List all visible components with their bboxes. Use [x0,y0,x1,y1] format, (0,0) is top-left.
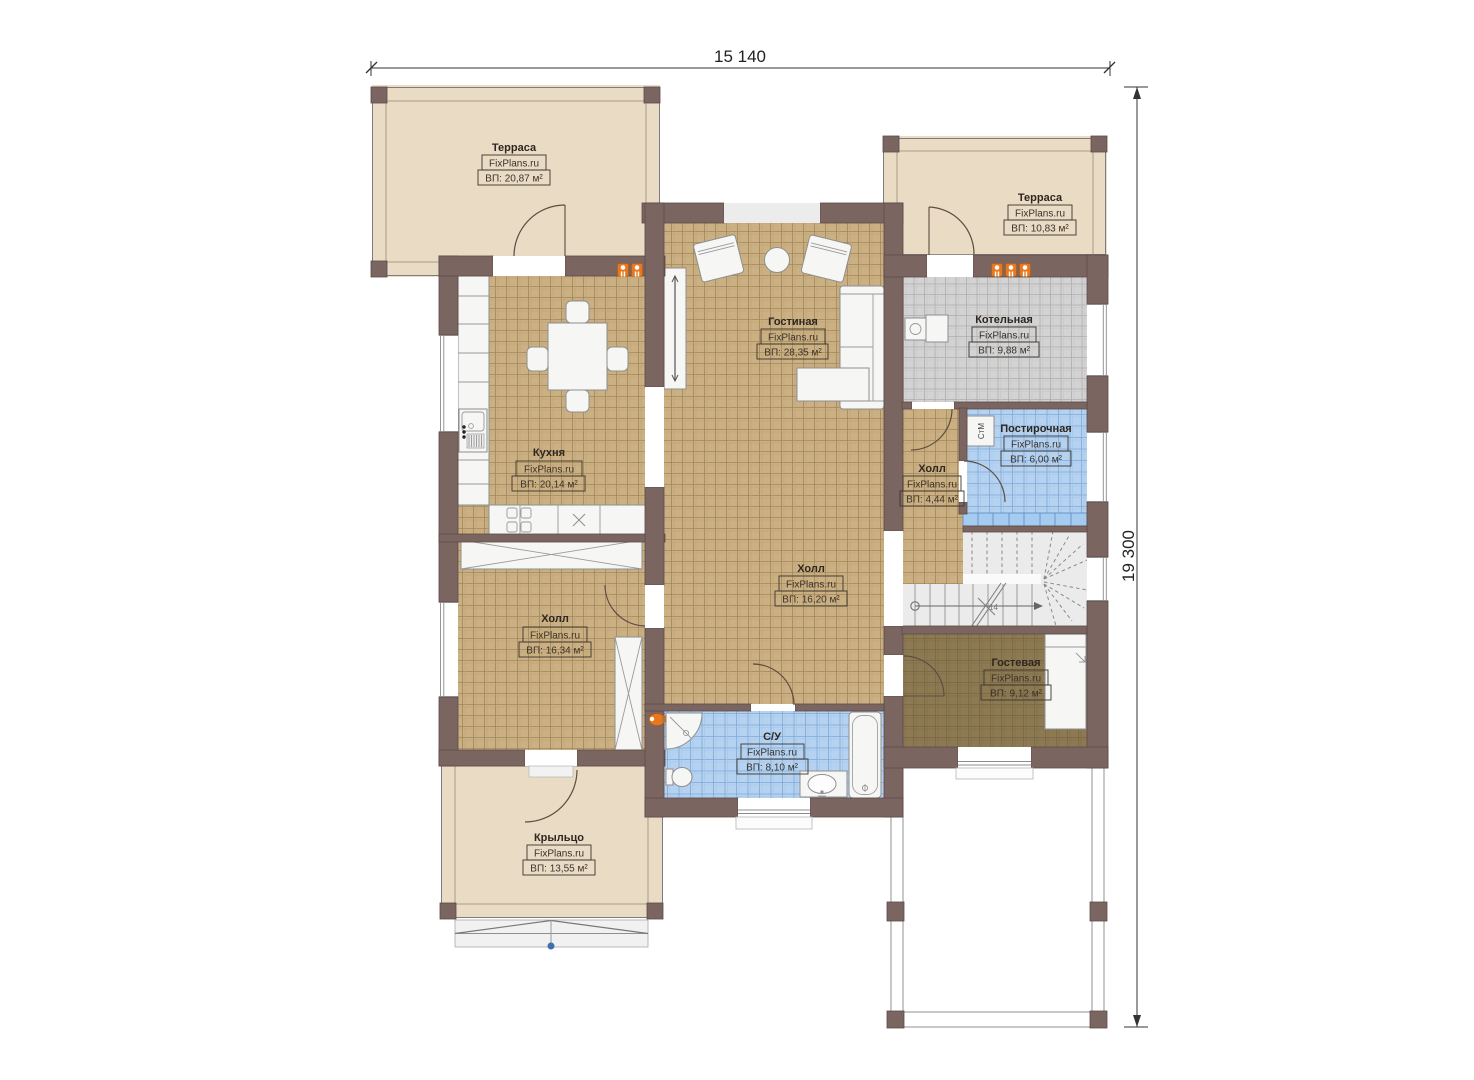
svg-text:FixPlans.ru: FixPlans.ru [534,849,584,860]
svg-text:FixPlans.ru: FixPlans.ru [524,465,574,476]
svg-text:ВП: 20,14 м²: ВП: 20,14 м² [520,480,578,491]
svg-text:19 300: 19 300 [1119,530,1138,582]
svg-text:FixPlans.ru: FixPlans.ru [1015,209,1065,220]
svg-text:ВП: 4,44 м²: ВП: 4,44 м² [906,495,959,506]
svg-text:Терраса: Терраса [1018,192,1063,204]
svg-text:15 140: 15 140 [714,47,766,66]
svg-text:СтМ: СтМ [977,423,986,439]
svg-text:Холл: Холл [918,463,946,475]
svg-text:FixPlans.ru: FixPlans.ru [768,333,818,344]
svg-text:FixPlans.ru: FixPlans.ru [991,674,1041,685]
svg-text:ВП: 13,55 м²: ВП: 13,55 м² [530,864,588,875]
svg-text:Гостиная: Гостиная [768,316,818,328]
svg-text:FixPlans.ru: FixPlans.ru [747,748,797,759]
svg-text:Холл: Холл [797,563,825,575]
svg-text:ВП: 8,10 м²: ВП: 8,10 м² [746,763,799,774]
svg-text:Терраса: Терраса [492,142,537,154]
svg-text:FixPlans.ru: FixPlans.ru [907,480,957,491]
svg-text:FixPlans.ru: FixPlans.ru [1011,440,1061,451]
svg-text:FixPlans.ru: FixPlans.ru [979,331,1029,342]
svg-text:Кухня: Кухня [533,447,565,459]
svg-text:ВП: 9,88 м²: ВП: 9,88 м² [978,346,1031,357]
svg-text:ВП: 10,83 м²: ВП: 10,83 м² [1011,224,1069,235]
svg-text:ВП: 20,87 м²: ВП: 20,87 м² [485,174,543,185]
svg-text:FixPlans.ru: FixPlans.ru [489,159,539,170]
svg-text:ВП: 16,20 м²: ВП: 16,20 м² [782,595,840,606]
svg-text:FixPlans.ru: FixPlans.ru [530,631,580,642]
svg-text:Крыльцо: Крыльцо [534,832,584,844]
svg-text:14: 14 [989,603,998,612]
svg-text:Котельная: Котельная [975,314,1033,326]
svg-text:ВП: 16,34 м²: ВП: 16,34 м² [526,646,584,657]
svg-text:С/У: С/У [763,731,781,743]
svg-text:FixPlans.ru: FixPlans.ru [786,580,836,591]
svg-text:Гостевая: Гостевая [991,657,1040,669]
svg-text:Холл: Холл [541,613,569,625]
svg-text:Постирочная: Постирочная [1000,423,1071,435]
svg-text:ВП: 6,00 м²: ВП: 6,00 м² [1010,455,1063,466]
svg-text:ВП: 9,12 м²: ВП: 9,12 м² [990,689,1043,700]
svg-text:ВП: 28,35 м²: ВП: 28,35 м² [764,348,822,359]
